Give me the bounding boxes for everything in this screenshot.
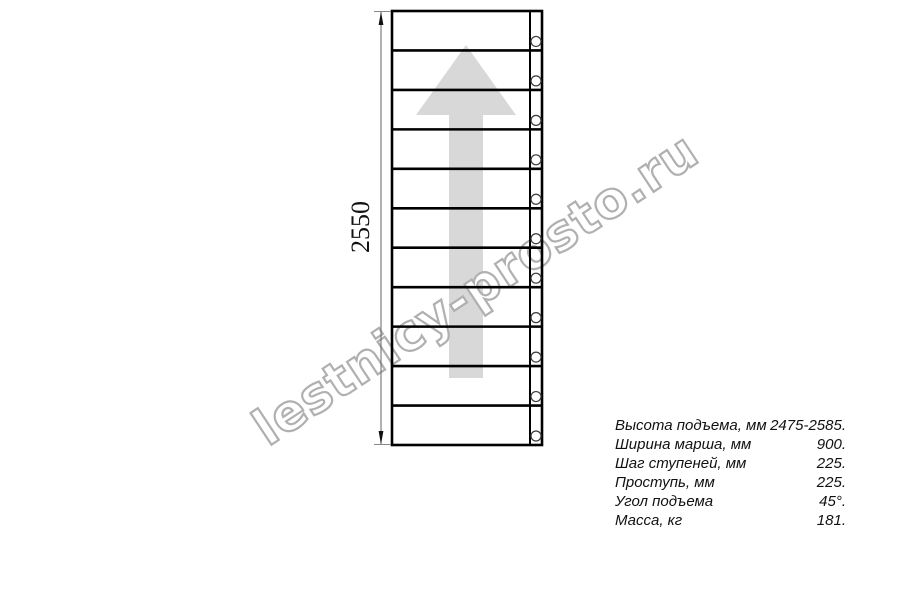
rail-hole-icon xyxy=(531,431,541,441)
dimension-arrow-bottom-icon xyxy=(379,431,384,445)
spec-value: 225. xyxy=(817,474,846,493)
rail-hole-icon xyxy=(531,273,541,283)
rail-hole-icon xyxy=(531,313,541,323)
spec-table: Высота подъема, мм 2475-2585. Ширина мар… xyxy=(615,417,846,530)
spec-value: 225. xyxy=(817,455,846,474)
rail-hole-icon xyxy=(531,155,541,165)
spec-label: Угол подъема xyxy=(615,493,713,512)
spec-label: Проступь, мм xyxy=(615,474,715,493)
spec-label: Шаг ступеней, мм xyxy=(615,455,746,474)
spec-row-angle: Угол подъема 45°. xyxy=(615,493,846,512)
rail-hole-icon xyxy=(531,194,541,204)
rail-mount-holes xyxy=(531,36,541,441)
spec-row-width: Ширина марша, мм 900. xyxy=(615,436,846,455)
spec-row-height: Высота подъема, мм 2475-2585. xyxy=(615,417,846,436)
rail-hole-icon xyxy=(531,234,541,244)
staircase-spec-sheet: lestnicy-prosto.ru 2550 Высота подъема, … xyxy=(0,0,900,600)
dimension-arrow-top-icon xyxy=(379,12,384,26)
spec-value: 900. xyxy=(817,436,846,455)
spec-value: 45°. xyxy=(819,493,846,512)
spec-label: Ширина марша, мм xyxy=(615,436,751,455)
spec-label: Масса, кг xyxy=(615,512,682,531)
spec-value: 2475-2585. xyxy=(770,417,846,436)
rail-hole-icon xyxy=(531,36,541,46)
rail-hole-icon xyxy=(531,76,541,86)
rail-hole-icon xyxy=(531,352,541,362)
rail-hole-icon xyxy=(531,392,541,402)
rail-hole-icon xyxy=(531,115,541,125)
spec-row-step-pitch: Шаг ступеней, мм 225. xyxy=(615,455,846,474)
spec-row-mass: Масса, кг 181. xyxy=(615,512,846,531)
spec-value: 181. xyxy=(817,512,846,531)
dimension-value-label: 2550 xyxy=(346,201,375,253)
spec-label: Высота подъема, мм xyxy=(615,417,767,436)
spec-row-tread: Проступь, мм 225. xyxy=(615,474,846,493)
